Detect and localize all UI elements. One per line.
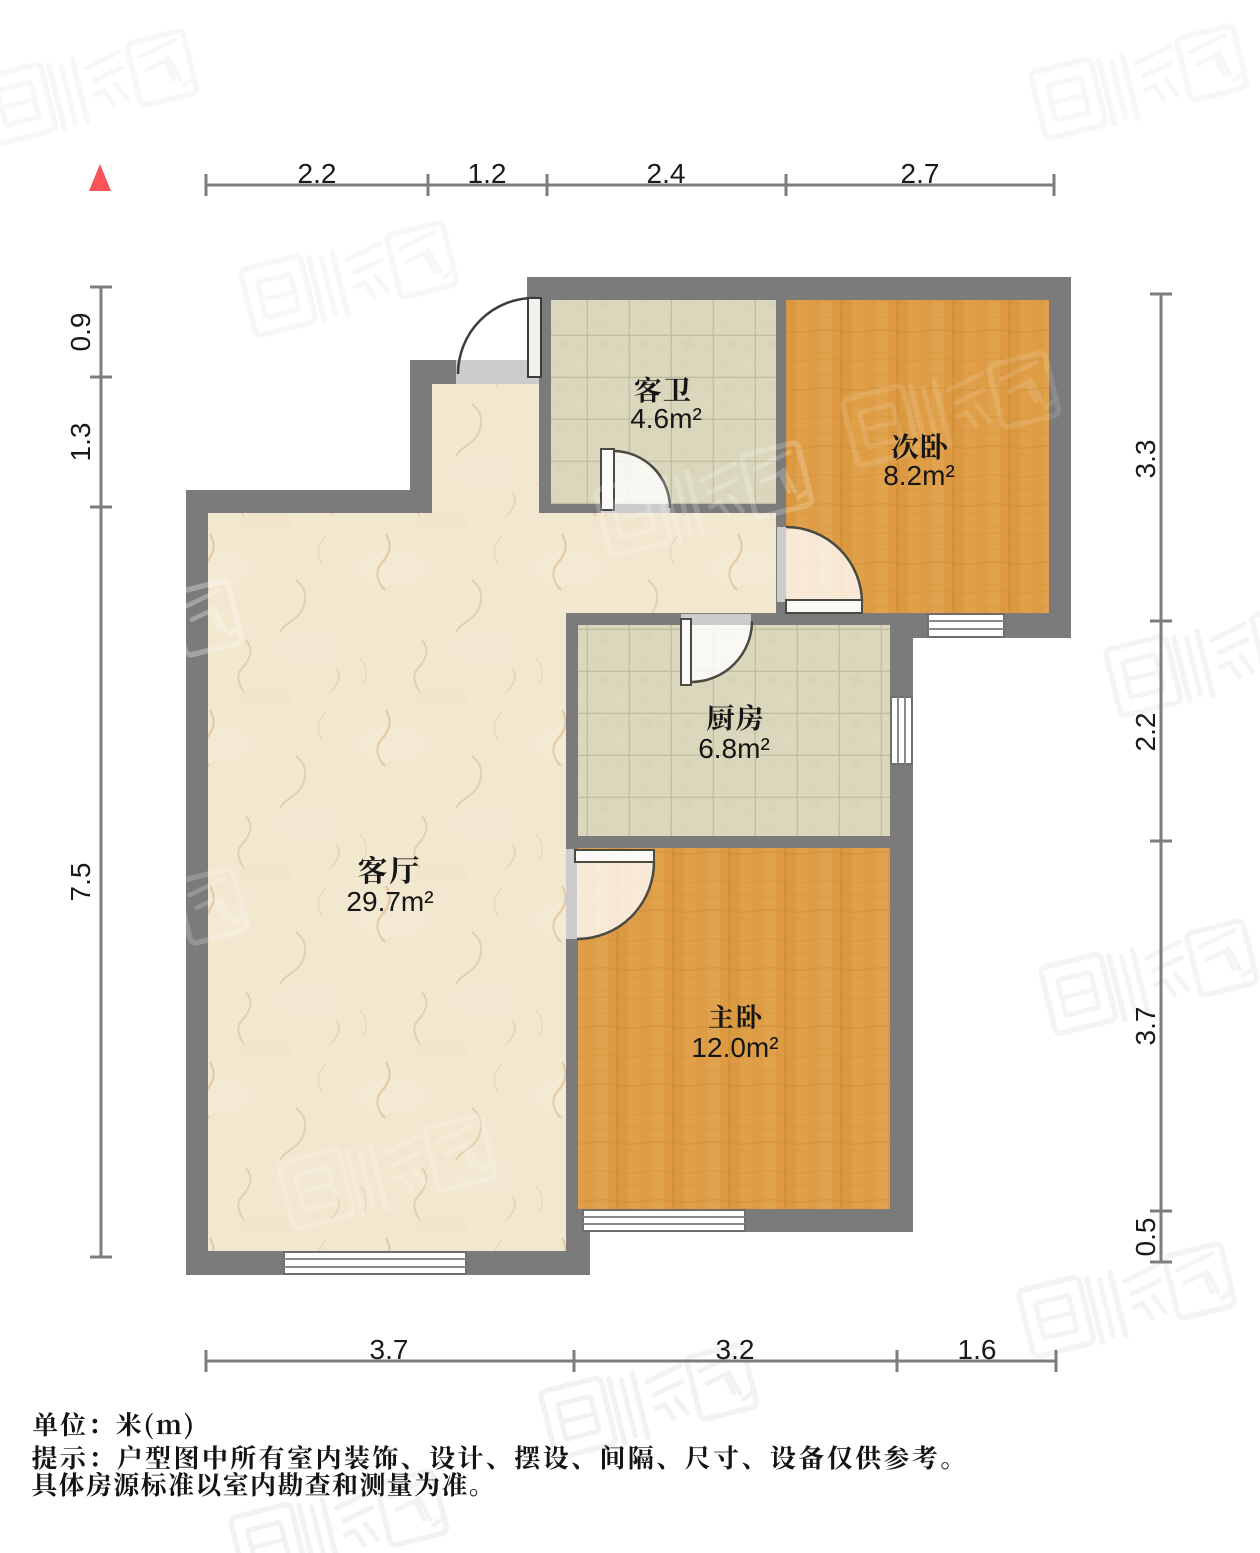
svg-text:6.8m²: 6.8m² — [698, 733, 770, 764]
svg-text:29.7m²: 29.7m² — [346, 886, 433, 917]
svg-text:2.2: 2.2 — [298, 158, 337, 189]
svg-text:2.2: 2.2 — [1130, 713, 1161, 752]
svg-text:8.2m²: 8.2m² — [883, 460, 955, 491]
svg-text:3.7: 3.7 — [370, 1334, 409, 1365]
svg-text:12.0m²: 12.0m² — [691, 1032, 778, 1063]
svg-text:0.9: 0.9 — [65, 313, 96, 352]
svg-text:3.2: 3.2 — [716, 1334, 755, 1365]
svg-text:2.7: 2.7 — [901, 158, 940, 189]
svg-text:1.6: 1.6 — [958, 1334, 997, 1365]
svg-text:7.5: 7.5 — [65, 863, 96, 902]
svg-text:2.4: 2.4 — [647, 158, 686, 189]
svg-text:3.3: 3.3 — [1130, 440, 1161, 479]
svg-text:4.6m²: 4.6m² — [630, 403, 702, 434]
svg-text:3.7: 3.7 — [1130, 1007, 1161, 1046]
svg-text:1.2: 1.2 — [468, 158, 507, 189]
svg-text:0.5: 0.5 — [1130, 1218, 1161, 1257]
svg-text:1.3: 1.3 — [65, 423, 96, 462]
